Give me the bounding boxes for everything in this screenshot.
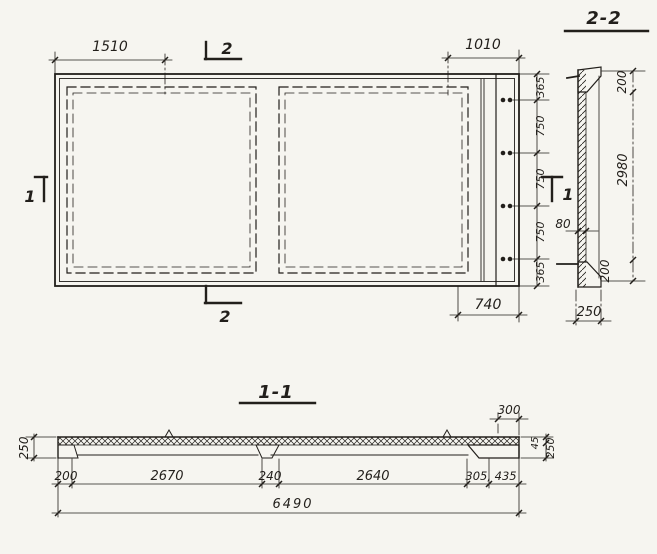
section-mark-2-label: 2 bbox=[219, 307, 230, 326]
plan-dim-1510: 1510 bbox=[49, 39, 172, 94]
section-2-2-width-dim: 250 bbox=[566, 290, 611, 326]
section-1-1-left-rib bbox=[58, 445, 78, 458]
lifting-mark-left bbox=[165, 430, 173, 437]
section-1-1-title: 1-1 bbox=[258, 382, 294, 403]
dim-label-1510: 1510 bbox=[92, 39, 128, 55]
dim-label-750-2: 750 bbox=[534, 169, 547, 190]
section-1-1-middle-rib bbox=[256, 445, 279, 458]
section-1-1-total-dim: 6490 bbox=[52, 497, 526, 516]
plan-view: 365 750 750 750 365 1510 1010 bbox=[24, 37, 573, 326]
section-1-1-right-rib bbox=[468, 445, 519, 458]
dim-label-2640: 2640 bbox=[356, 469, 389, 484]
dim-label-750-1: 750 bbox=[534, 116, 547, 137]
section-1-1-right-height-dim: 45 250 bbox=[521, 434, 557, 461]
dim-label-6490: 6490 bbox=[272, 497, 313, 512]
drawing-sheet: 365 750 750 750 365 1510 1010 bbox=[0, 0, 657, 554]
dim-label-250-right: 250 bbox=[544, 438, 557, 459]
dim-label-200: 200 bbox=[55, 469, 78, 483]
section-mark-2-label: 2 bbox=[221, 39, 232, 58]
dim-label-200-bottom: 200 bbox=[598, 259, 612, 282]
dim-label-305-435: 305, 435 bbox=[465, 469, 516, 483]
anchor-dots bbox=[501, 98, 513, 262]
dim-label-80: 80 bbox=[555, 217, 571, 231]
plan-dim-1010: 1010 bbox=[442, 37, 525, 95]
dim-label-365-bottom: 365 bbox=[534, 262, 547, 283]
section-2-2-height-dims: 200 2980 200 bbox=[598, 68, 645, 284]
section-mark-2-top: 2 bbox=[205, 39, 241, 59]
dim-label-250-left: 250 bbox=[17, 436, 31, 459]
section-mark-2-bottom: 2 bbox=[205, 286, 241, 326]
dim-label-750-3: 750 bbox=[534, 222, 547, 243]
dim-label-240: 240 bbox=[259, 469, 282, 483]
section-1-1-left-height-dim: 250 bbox=[17, 434, 56, 461]
section-1-1: 1-1 250 300 bbox=[17, 382, 557, 517]
dim-label-2980: 2980 bbox=[616, 153, 631, 186]
dim-label-300: 300 bbox=[498, 403, 521, 417]
dim-label-2670: 2670 bbox=[150, 469, 183, 484]
dim-label-1010: 1010 bbox=[465, 37, 501, 53]
section-mark-1-label: 1 bbox=[24, 187, 35, 206]
dim-label-45: 45 bbox=[530, 437, 541, 450]
plan-right-opening bbox=[279, 87, 468, 273]
section-2-2-web-dim: 80 bbox=[555, 217, 598, 234]
section-mark-1-label: 1 bbox=[562, 185, 573, 204]
dim-label-740: 740 bbox=[475, 297, 502, 313]
dim-label-200-top: 200 bbox=[615, 70, 629, 93]
technical-drawing: 365 750 750 750 365 1510 1010 bbox=[0, 0, 657, 554]
dim-label-250-width: 250 bbox=[577, 305, 602, 320]
lifting-mark-right bbox=[443, 430, 451, 437]
section-mark-1-left: 1 bbox=[24, 177, 47, 206]
plan-right-dim-chain: 365 750 750 750 365 bbox=[534, 71, 547, 289]
section-2-2-title: 2-2 bbox=[586, 8, 622, 29]
section-1-1-300-dim: 300 bbox=[490, 403, 528, 435]
plan-dim-740: 740 bbox=[450, 286, 527, 322]
dim-label-365-top: 365 bbox=[534, 77, 547, 98]
section-2-2: 2-2 200 2980 200 80 bbox=[555, 8, 648, 326]
plan-left-opening bbox=[67, 87, 256, 273]
